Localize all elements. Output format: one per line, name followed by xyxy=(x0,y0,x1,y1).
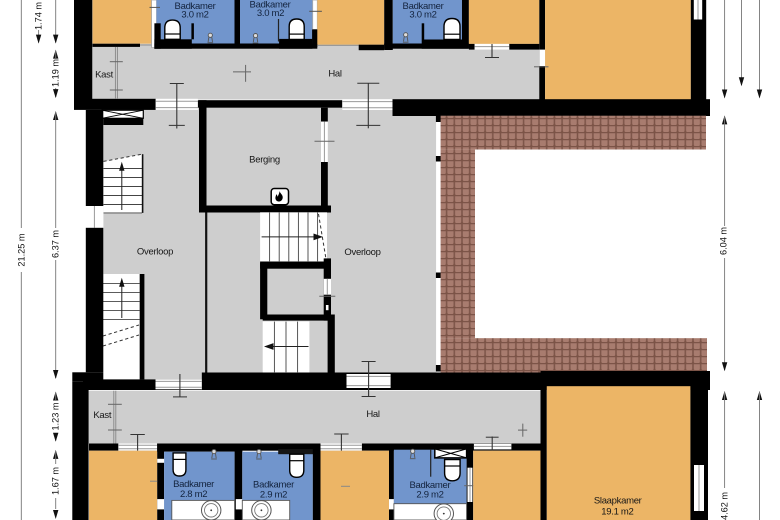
svg-text:3.0 m2: 3.0 m2 xyxy=(181,10,208,21)
svg-text:21.25 m: 21.25 m xyxy=(16,233,26,267)
svg-text:Overloop: Overloop xyxy=(137,247,173,258)
svg-text:6.37 m: 6.37 m xyxy=(51,230,61,258)
svg-text:3.0 m2: 3.0 m2 xyxy=(257,8,284,19)
svg-text:Overloop: Overloop xyxy=(344,247,380,258)
svg-text:1.19 m: 1.19 m xyxy=(51,59,61,87)
svg-text:1.23 m: 1.23 m xyxy=(51,402,61,430)
svg-text:Slaapkamer: Slaapkamer xyxy=(594,496,642,507)
svg-text:Berging: Berging xyxy=(249,155,280,166)
svg-text:2.8 m2: 2.8 m2 xyxy=(180,489,207,500)
svg-text:Kast: Kast xyxy=(95,70,113,81)
svg-text:Kast: Kast xyxy=(93,410,111,421)
svg-text:Hal: Hal xyxy=(366,409,380,420)
svg-text:4.62 m: 4.62 m xyxy=(720,492,730,520)
svg-text:1.67 m: 1.67 m xyxy=(51,467,61,495)
svg-text:2.9 m2: 2.9 m2 xyxy=(416,490,443,501)
svg-text:3.0 m2: 3.0 m2 xyxy=(409,10,436,21)
svg-text:6.04 m: 6.04 m xyxy=(719,227,729,255)
svg-text:1.74 m: 1.74 m xyxy=(34,2,44,30)
svg-text:Hal: Hal xyxy=(328,69,342,80)
svg-text:2.9 m2: 2.9 m2 xyxy=(260,490,287,501)
svg-text:19.1 m2: 19.1 m2 xyxy=(601,507,633,518)
